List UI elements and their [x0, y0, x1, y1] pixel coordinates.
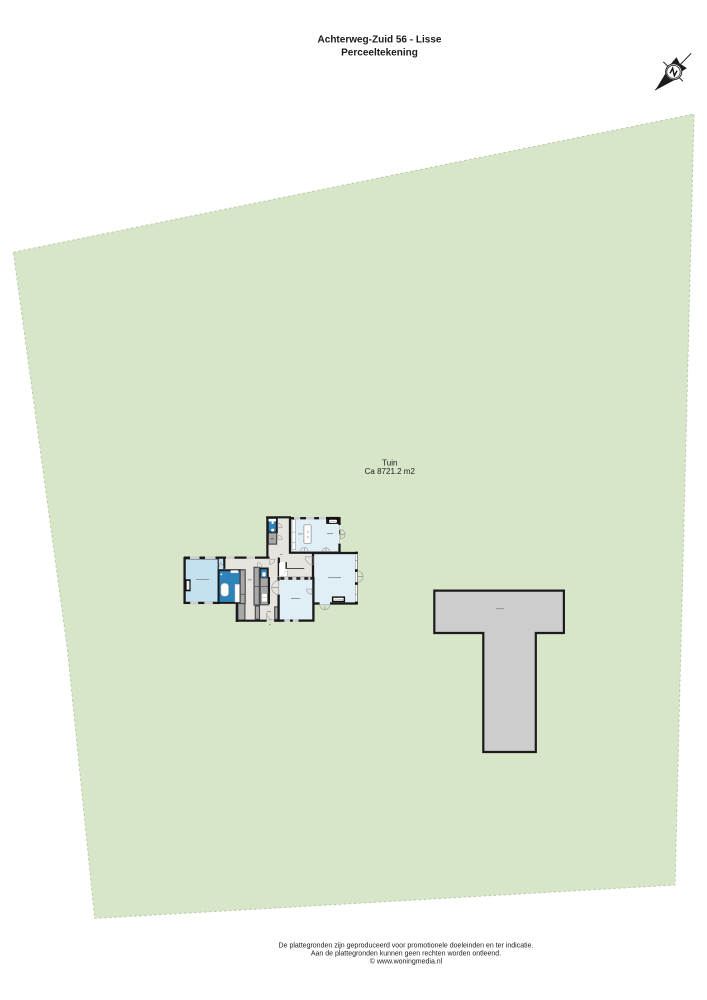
svg-text:Ca 8721.2 m2: Ca 8721.2 m2 [365, 467, 416, 476]
svg-text:Achterweg-Zuid 56 - Lisse: Achterweg-Zuid 56 - Lisse [318, 34, 442, 45]
svg-text:© www.woningmedia.nl: © www.woningmedia.nl [370, 957, 443, 965]
svg-text:Perceeltekening: Perceeltekening [341, 48, 418, 59]
svg-text:De plattegronden zijn geproduc: De plattegronden zijn geproduceerd voor … [279, 942, 534, 949]
svg-text:Aan de plattegronden kunnen ge: Aan de plattegronden kunnen geen rechten… [311, 950, 501, 957]
